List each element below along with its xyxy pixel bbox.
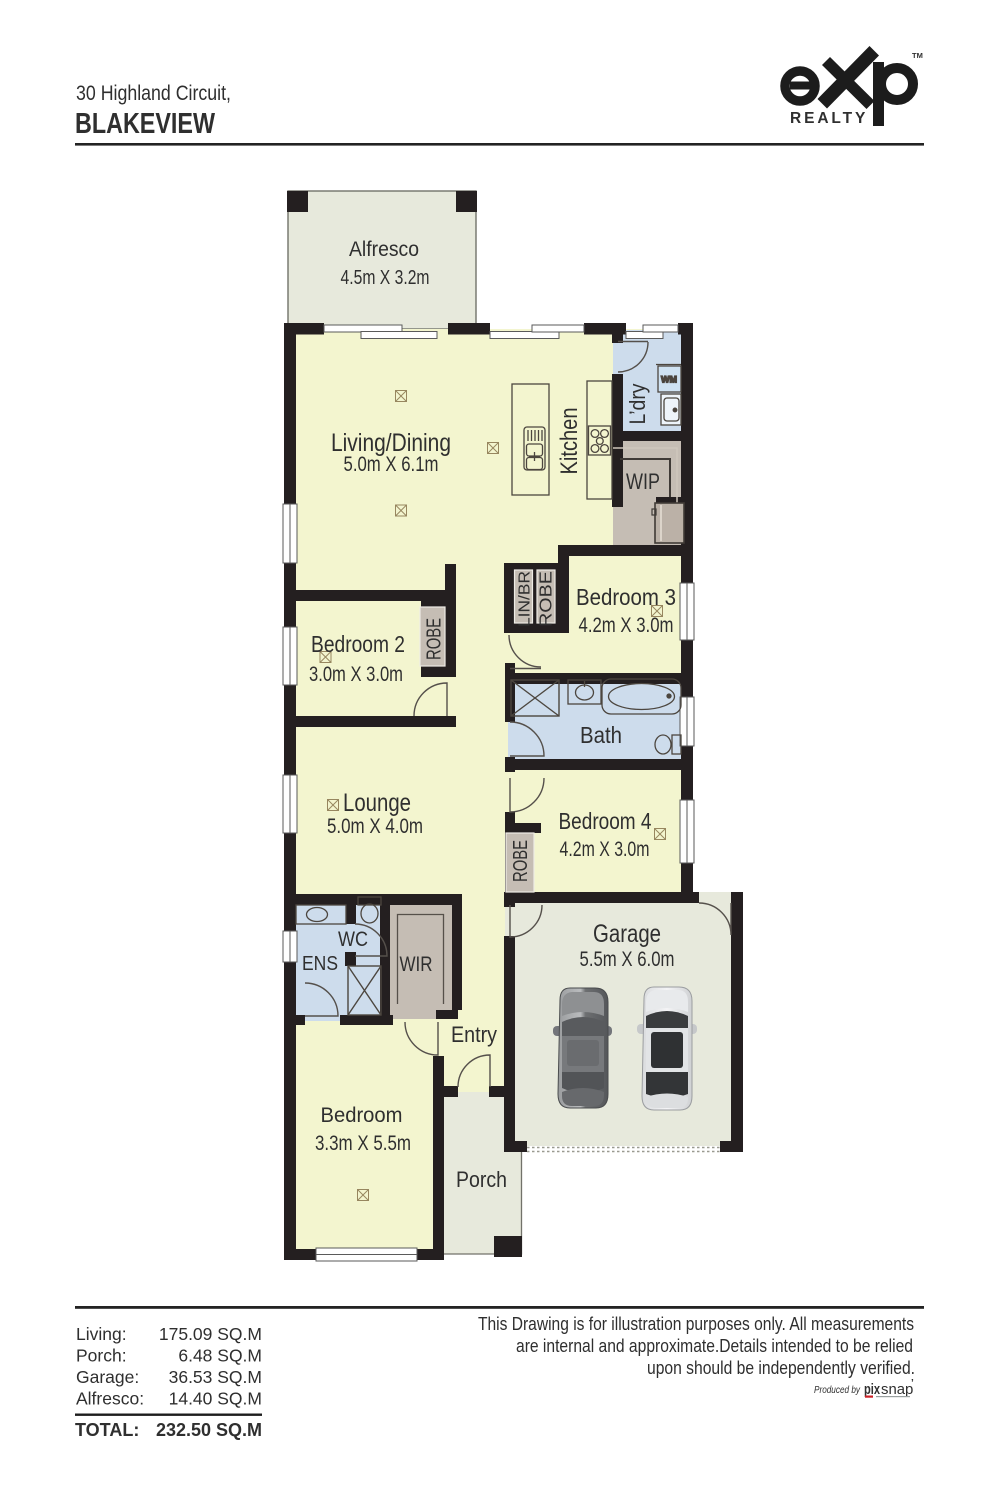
svg-text:Produced by: Produced by bbox=[814, 1384, 861, 1396]
svg-text:ENS: ENS bbox=[302, 952, 338, 975]
svg-text:upon should be independently v: upon should be independently verified. bbox=[647, 1358, 915, 1378]
svg-text:REALTY: REALTY bbox=[790, 110, 868, 127]
svg-text:Alfresco:: Alfresco: bbox=[76, 1389, 144, 1409]
svg-text:L’dry: L’dry bbox=[625, 384, 650, 425]
svg-text:TOTAL:: TOTAL: bbox=[75, 1420, 139, 1440]
svg-text:Porch:: Porch: bbox=[76, 1346, 127, 1366]
svg-text:Living:: Living: bbox=[76, 1324, 127, 1344]
svg-text:TM: TM bbox=[912, 51, 923, 60]
svg-text:4.2m X 3.0m: 4.2m X 3.0m bbox=[560, 838, 650, 861]
svg-text:WIR: WIR bbox=[400, 953, 433, 976]
svg-text:ROBE: ROBE bbox=[510, 840, 532, 882]
svg-text:ROBE: ROBE bbox=[424, 618, 446, 660]
svg-text:4.5m X 3.2m: 4.5m X 3.2m bbox=[341, 266, 430, 289]
svg-text:5.5m X 6.0m: 5.5m X 6.0m bbox=[580, 947, 675, 971]
svg-text:are internal and approximate.D: are internal and approximate.Details int… bbox=[516, 1336, 913, 1356]
svg-text:6.48 SQ.M: 6.48 SQ.M bbox=[178, 1346, 262, 1366]
svg-text:5.0m X 6.1m: 5.0m X 6.1m bbox=[344, 452, 439, 476]
svg-text:Bedroom 4: Bedroom 4 bbox=[559, 808, 652, 834]
svg-text:’: ’ bbox=[911, 1378, 914, 1389]
svg-text:Porch: Porch bbox=[456, 1167, 507, 1192]
svg-text:175.09 SQ.M: 175.09 SQ.M bbox=[159, 1324, 262, 1344]
svg-text:Garage: Garage bbox=[593, 920, 661, 948]
svg-text:pix: pix bbox=[864, 1381, 880, 1398]
svg-text:5.0m X 4.0m: 5.0m X 4.0m bbox=[327, 814, 423, 838]
svg-text:WC: WC bbox=[338, 928, 368, 951]
svg-text:3.3m X 5.5m: 3.3m X 5.5m bbox=[315, 1131, 411, 1155]
svg-text:Bedroom: Bedroom bbox=[321, 1103, 403, 1127]
svg-text:WM: WM bbox=[661, 375, 677, 385]
svg-text:sna: sna bbox=[881, 1381, 906, 1398]
svg-text:3.0m X 3.0m: 3.0m X 3.0m bbox=[309, 663, 403, 686]
svg-text:30 Highland Circuit,: 30 Highland Circuit, bbox=[76, 82, 231, 105]
svg-text:Entry: Entry bbox=[451, 1022, 497, 1047]
svg-text:4.2m X 3.0m: 4.2m X 3.0m bbox=[579, 614, 674, 637]
svg-text:ROBE: ROBE bbox=[536, 571, 556, 627]
svg-text:WIP: WIP bbox=[626, 469, 660, 494]
svg-text:Lounge: Lounge bbox=[343, 789, 411, 817]
svg-text:BLAKEVIEW: BLAKEVIEW bbox=[75, 108, 216, 140]
svg-text:Alfresco: Alfresco bbox=[349, 237, 419, 261]
svg-text:14.40 SQ.M: 14.40 SQ.M bbox=[169, 1389, 262, 1409]
svg-text:Bath: Bath bbox=[580, 722, 622, 748]
svg-text:LIN/BR: LIN/BR bbox=[517, 571, 534, 627]
svg-text:Kitchen: Kitchen bbox=[556, 408, 583, 475]
svg-text:232.50 SQ.M: 232.50 SQ.M bbox=[156, 1420, 262, 1440]
svg-text:This Drawing is for illustrati: This Drawing is for illustration purpose… bbox=[478, 1314, 914, 1334]
svg-text:Bedroom 3: Bedroom 3 bbox=[576, 584, 676, 610]
svg-text:Garage:: Garage: bbox=[76, 1367, 139, 1387]
svg-text:Bedroom 2: Bedroom 2 bbox=[311, 631, 405, 657]
svg-text:36.53 SQ.M: 36.53 SQ.M bbox=[169, 1367, 262, 1387]
